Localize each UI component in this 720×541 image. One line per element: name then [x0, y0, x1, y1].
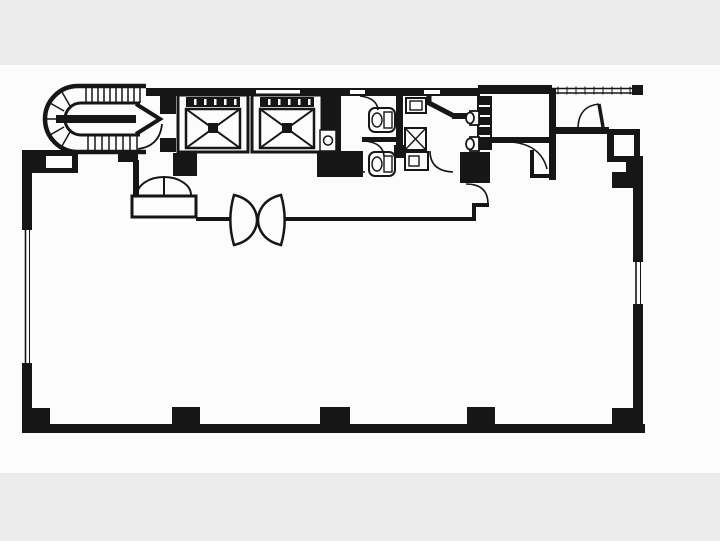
vestibule-box [132, 196, 196, 217]
top-wall-window-slit [256, 90, 300, 94]
top-wall-room-a [478, 85, 552, 94]
elevator-door-hatch [224, 99, 227, 105]
stair-side-wall-top [160, 88, 176, 114]
outer-wall-left-upper [22, 150, 32, 230]
room-c-bottom-wall [555, 127, 609, 134]
outer-wall-bottom [22, 424, 645, 433]
wall-notch [46, 156, 72, 168]
urinal-icon [466, 139, 474, 150]
right-pilaster [612, 172, 643, 188]
elevator-door-hatch [214, 99, 217, 105]
urinal-icon [466, 113, 474, 124]
elevator-door-hatch [288, 99, 291, 105]
stair-side-wall-bottom [160, 138, 176, 152]
room-a-bottom-wall [492, 137, 549, 143]
entry-partition [530, 150, 534, 178]
shaft-hatch [479, 125, 490, 127]
elevator-door-hatch [234, 99, 237, 105]
shaft-hatch [479, 115, 490, 117]
perimeter-column [467, 407, 495, 424]
elevator-icon-center [208, 123, 218, 133]
core-column [173, 153, 197, 176]
floor-plan [0, 0, 720, 541]
perimeter-column [172, 407, 200, 424]
core-column [460, 152, 490, 183]
sink-icon [320, 130, 336, 151]
elevator-icon-center [282, 123, 292, 133]
elevator-door-hatch [268, 99, 271, 105]
stair-landing-bar [56, 115, 136, 123]
corner-column-notch [614, 135, 634, 156]
outer-wall-right-lower [633, 304, 643, 433]
perimeter-column [25, 408, 50, 425]
core-column [317, 151, 363, 177]
top-wall-window-slit [424, 90, 440, 94]
top-wall-window-slit [350, 90, 365, 94]
corridor-wall-step [472, 203, 489, 207]
perimeter-column [612, 408, 633, 424]
elevator-door-hatch [204, 99, 207, 105]
core-wall-vertical [549, 88, 556, 180]
corridor-wall [284, 217, 475, 221]
elevator-door-hatch [194, 99, 197, 105]
elevator-door-hatch [308, 99, 311, 105]
corridor-wall [196, 217, 231, 221]
entry-partition [530, 174, 554, 178]
top-right-corner-post [632, 85, 643, 95]
perimeter-column [320, 407, 350, 424]
shaft-hatch [479, 135, 490, 137]
shaft-hatch [479, 105, 490, 107]
elevator-door-hatch [298, 99, 301, 105]
elevator-door-hatch [278, 99, 281, 105]
floor-plan-page [0, 0, 720, 541]
